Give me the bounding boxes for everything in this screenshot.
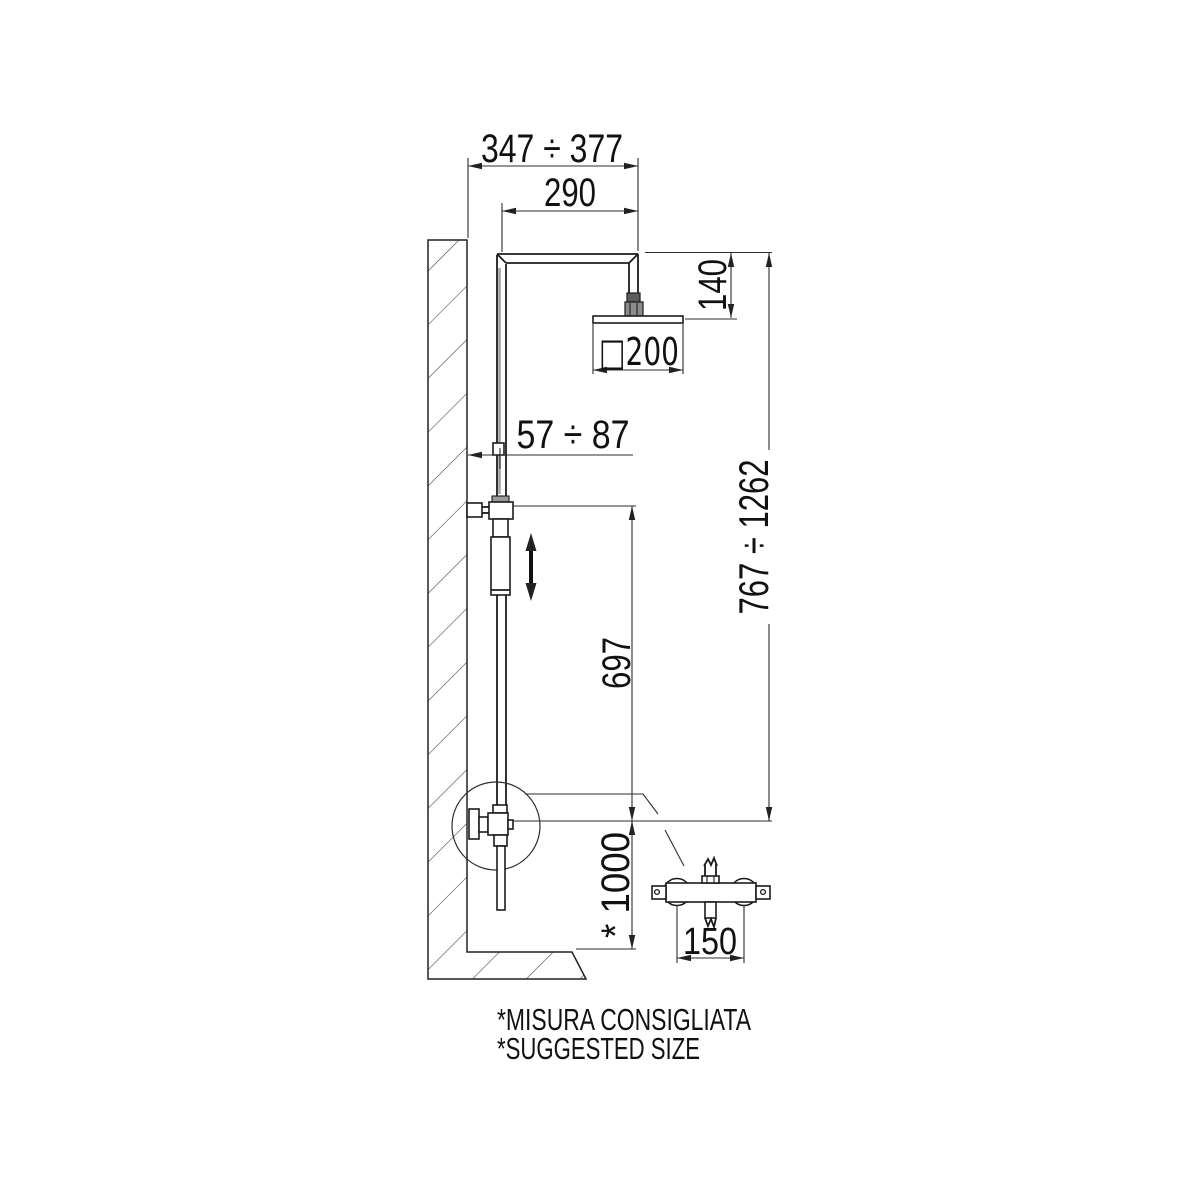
dim-head-size: □200 [599,330,679,374]
valve-body [488,813,508,835]
leader-valve-to-mixer-lower [665,830,684,866]
dim-head-drop: 140 [691,259,735,311]
dim-column-range: 767 ÷ 1262 [730,460,777,615]
shower-column-dimension-drawing: 347 ÷ 377 290 140 □200 57 ÷ 87 767 ÷ 12 [0,0,1200,1200]
bracket-collar [489,502,513,519]
head-ball-joint [625,302,643,317]
mixer-front-view: 150 [652,858,770,963]
notes: *MISURA CONSIGLIATA *SUGGESTED SIZE [497,1002,751,1066]
valve-top-connector [493,805,507,813]
bracket-collar-cap [492,496,509,502]
mixer-top-nut [702,876,719,883]
hand-shower-wand [497,846,505,910]
note-suggested-size: *SUGGESTED SIZE [497,1031,700,1066]
slide-adjust-arrow [526,533,537,601]
mixer-top-pipe-break [704,858,717,866]
sleeve-upper-segment [493,519,508,537]
wall-bracket-block [467,503,482,517]
dim-install-height: * 1000 [594,832,638,938]
arm-left-miter [497,254,506,263]
dim-mixer-centers: 150 [683,921,737,963]
tube-joint-tab [493,443,504,455]
head-nut-upper [627,293,640,302]
valve-nub [508,820,513,829]
shower-head-plate [593,316,683,323]
dim-wall-offset: 57 ÷ 87 [517,413,630,457]
valve-outlet [494,835,507,846]
dim-top-range: 347 ÷ 377 [481,127,623,171]
mixer-body [666,883,756,902]
valve-wall-flange [469,809,479,839]
dim-arm-width: 290 [544,171,596,215]
sliding-sleeve [491,537,510,595]
mixer-right-ear [756,886,770,899]
mixer-bottom-outlet [705,902,716,918]
valve-stem [479,817,488,832]
dim-slide-span: 697 [595,637,639,689]
dimensions: 347 ÷ 377 290 140 □200 57 ÷ 87 767 ÷ 12 [468,127,777,949]
arm-right-miter [629,254,638,263]
leader-valve-to-mixer-upper [525,794,658,814]
technical-drawing-page: 347 ÷ 377 290 140 □200 57 ÷ 87 767 ÷ 12 [0,0,1200,1200]
diverter-valve [469,805,513,910]
